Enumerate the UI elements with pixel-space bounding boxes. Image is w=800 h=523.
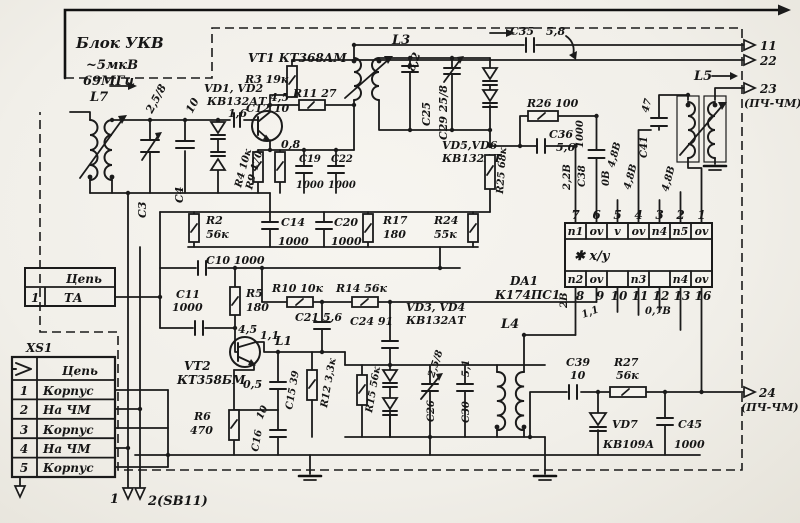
r17-resistor: R17 180: [363, 214, 408, 242]
pin5-voltage: 4,8В: [606, 141, 623, 169]
c41-label: С41: [639, 136, 650, 158]
r5-value: 180: [246, 301, 269, 314]
c3-label: С3: [136, 201, 149, 218]
xs1-row: 4 На ЧМ: [20, 442, 91, 456]
header-block: Блок УКВ ~5мкВ 69МГц: [75, 34, 164, 89]
xs1-row4-name: На ЧМ: [42, 442, 91, 456]
da1-cell-t6: ov: [695, 225, 709, 238]
vd7-label: VD7: [612, 418, 638, 431]
da1-pin11-voltage: 0,7В: [645, 306, 671, 317]
c45-label: С45: [678, 418, 702, 431]
c26-trimmer-cap: 2,5/8 С26: [421, 349, 446, 422]
xs1-title: XS1: [25, 341, 52, 355]
r17-value: 180: [383, 228, 406, 241]
da1-cell-t3: ov: [632, 225, 646, 238]
ta-row-name: ТА: [64, 291, 83, 305]
terminal-23-icon: [744, 83, 755, 93]
r14-label: R14 56к: [335, 282, 388, 295]
c16-value: 10: [255, 404, 271, 421]
c38-value: 1000: [575, 120, 586, 148]
r6-value: 470: [190, 424, 213, 437]
ground-symbols: [299, 476, 556, 480]
c14-value: 1000: [278, 235, 309, 248]
pin7-voltage: 2,2В: [562, 164, 573, 191]
xs1-row: 2 На ЧМ: [19, 403, 91, 417]
l3-label: L3: [391, 33, 410, 48]
pin24-label: 24: [758, 386, 776, 400]
pin22-label: 22: [759, 54, 777, 68]
l4-transformer: L4: [495, 317, 527, 430]
c20-value: 1000: [331, 235, 362, 248]
r25-label: R25 68к: [495, 147, 509, 195]
c36-value: 5,6: [556, 141, 575, 154]
xs1-row1-num: 1: [20, 384, 28, 398]
r2-resistor: R2 56к: [189, 214, 229, 242]
da1-pin6: 6: [592, 208, 601, 222]
da1-cell-t1: ov: [590, 225, 604, 238]
da1-cell-b1: ov: [590, 273, 604, 286]
l7-transformer: L7: [80, 90, 127, 180]
da1-cell-t5: п5: [673, 225, 689, 238]
r24-label: R24: [433, 214, 458, 227]
c30-label: С30: [461, 401, 472, 423]
c41-capacitor: 47 С41: [639, 97, 667, 158]
da1-pin16: 16: [695, 289, 712, 303]
r27-value: 56к: [616, 369, 639, 382]
block-title: Блок УКВ: [75, 34, 164, 52]
xs1-row5-num: 5: [20, 461, 28, 475]
xs1-row1-name: Корпус: [42, 384, 94, 398]
da1-cell-t0: п1: [568, 225, 584, 238]
xs1-row3-name: Корпус: [42, 423, 94, 437]
xs1-row: 3 Корпус: [20, 423, 94, 437]
da1-pin8-voltage: 2В: [559, 293, 570, 309]
r24-resistor: R24 55к: [433, 214, 478, 242]
xs1-row: 1 Корпус: [20, 384, 94, 398]
c36-capacitor: С36 5,6: [537, 128, 575, 154]
c25-value: 8,2: [405, 50, 424, 73]
signal-level: ~5мкВ: [86, 58, 138, 73]
da1-pin9: 9: [596, 289, 605, 303]
c19-value: 1000: [296, 180, 324, 191]
xs1-row4-num: 4: [20, 442, 28, 456]
r10-label: R10 10к: [271, 282, 324, 295]
pin6-voltage: 0В: [601, 171, 612, 186]
r5-label: R5: [245, 287, 263, 300]
xs1-header: Цепь: [61, 364, 98, 378]
down-terminal-icon: [123, 488, 133, 499]
l1-label: L1: [274, 334, 292, 348]
pin23-label: 23: [759, 82, 777, 96]
da1-pin8-voltage2: 1,1: [580, 305, 600, 321]
vd5-vd6-label: VD5,VD6: [442, 139, 498, 152]
vd5-vd6-varicaps: VD5,VD6 КВ132АТ: [441, 68, 502, 165]
vd7-varicap: VD7 КВ109А: [590, 413, 654, 451]
ta-table: Цепь 1 ТА: [25, 268, 115, 306]
da1-cell-b5: п4: [673, 273, 689, 286]
bottom-terminal-1-label: 1: [110, 492, 119, 507]
da1-pin2: 2: [675, 208, 684, 222]
c4-label: С4: [173, 187, 186, 203]
r5-resistor: R5 180: [230, 287, 269, 315]
c35-value: 5,8: [546, 25, 565, 38]
c11-value: 1000: [172, 301, 203, 314]
c14-label: С14: [281, 216, 305, 229]
r25-resistor: R25 68к: [485, 147, 509, 195]
xs1-row3-num: 3: [20, 423, 28, 437]
vt1-base-voltage: 1,6: [228, 107, 247, 120]
da1-pin11: 11: [632, 289, 649, 303]
terminal-22-icon: [744, 55, 755, 65]
vt2-transistor: VT2 КТ358БМ 4,5 1,1 0,5 L1: [176, 323, 292, 391]
r11-resistor: R11 27: [292, 87, 337, 110]
r24-value: 55к: [434, 228, 457, 241]
down-terminal-icon: [15, 486, 25, 497]
da1-cell-b3: п3: [631, 273, 647, 286]
c29-label: С29 25/8: [437, 85, 450, 140]
da1-function: ✱ x/y: [574, 249, 611, 264]
c39-value: 10: [570, 369, 586, 382]
c41-value: 47: [640, 97, 654, 113]
c14-capacitor: С14 1000: [262, 216, 309, 248]
pin4-voltage: 4,8В: [622, 163, 639, 191]
c19-capacitor: С19 1000: [296, 154, 324, 191]
l5-label: L5: [693, 69, 712, 84]
r2-value: 56к: [206, 228, 229, 241]
r2-label: R2: [205, 214, 223, 227]
terminal-24-icon: [744, 387, 755, 397]
r27-label: R27: [613, 356, 639, 369]
xs1-row2-name: На ЧМ: [42, 403, 91, 417]
xs1-row: 5 Корпус: [20, 461, 94, 475]
c45-value: 1000: [674, 438, 705, 451]
da1-pin7: 7: [571, 208, 580, 222]
c3-trimmer-cap: С3 2,5/8: [136, 82, 169, 218]
da1-cell-t4: п4: [652, 225, 668, 238]
c35-capacitor: С35 5,8: [510, 25, 565, 52]
schematic-page: Блок УКВ ~5мкВ 69МГц: [0, 0, 800, 523]
da1-pin13: 13: [674, 289, 691, 303]
da1-pin12: 12: [653, 289, 670, 303]
down-terminal-icon: [135, 488, 145, 499]
r3-label: R3 19к: [244, 73, 289, 86]
l7-label: L7: [89, 90, 108, 105]
xs1-row5-name: Корпус: [42, 461, 94, 475]
r6-resistor: R6 470: [190, 410, 239, 440]
vt2-label: VT2: [184, 359, 211, 373]
c22-label: С22: [331, 154, 353, 165]
c25-label: С25: [420, 102, 433, 126]
terminal-11-icon: [744, 40, 755, 50]
vt1-emitter-voltage: 0,8: [281, 138, 300, 151]
c21-label: С21 5,6: [295, 311, 342, 324]
c11-label: С11: [176, 288, 200, 301]
c19-label: С19: [299, 154, 321, 165]
da1-pin1: 1: [697, 208, 705, 222]
c29-trimmer-cap: С29 25/8: [437, 56, 464, 140]
pin24-note: (ПЧ-ЧМ): [741, 401, 799, 414]
da1-cell-t2: v: [614, 225, 621, 238]
c4-capacitor: С4 10: [173, 95, 202, 203]
r6-label: R6: [193, 410, 211, 423]
l5-transformer: L5: [677, 69, 738, 170]
c15-capacitor: С15 39: [270, 370, 302, 411]
c3-value: 2,5/8: [143, 82, 170, 116]
c16-capacitor: С16 10: [250, 404, 286, 453]
da1-pin10: 10: [611, 289, 628, 303]
xs1-row2-num: 2: [19, 403, 28, 417]
r27-resistor: R27 56к: [610, 356, 646, 397]
c21-capacitor: С21 5,6: [295, 311, 342, 329]
c30-capacitor: 5,1 С30: [457, 360, 473, 423]
xs1-table: XS1 Цепь 1 Корпус 2 На ЧМ 3 Корпус 4 На …: [12, 341, 115, 497]
schematic-canvas: Блок УКВ ~5мкВ 69МГц: [0, 0, 800, 523]
pin23-note: (ПЧ-ЧМ): [744, 97, 800, 110]
output-terminals: 11 22 23 (ПЧ-ЧМ) 24 (ПЧ-ЧМ): [741, 39, 800, 414]
c22-value: 1000: [328, 180, 356, 191]
connector-pin-icon: [12, 363, 31, 375]
da1-cell-b0: п2: [568, 273, 584, 286]
c20-label: С20: [334, 216, 358, 229]
bottom-terminal-2-label: 2(SB11): [147, 494, 208, 509]
c22-capacitor: С22 1000: [328, 154, 356, 191]
c16-label: С16: [250, 429, 265, 452]
c36-label: С36: [549, 128, 573, 141]
da1-pin5: 5: [613, 208, 621, 222]
r10-resistor: R10 10к: [271, 282, 324, 307]
da1-pin4: 4: [634, 208, 642, 222]
vt2-base-voltage: 4,5: [238, 323, 257, 336]
pin11-label: 11: [760, 39, 777, 53]
bottom-terminals: 1 2(SB11): [110, 488, 208, 509]
vt1-label: VT1 КТ368АМ: [248, 51, 347, 65]
da1-type: К174ПС1: [494, 288, 560, 302]
vd3-vd4-type: КВ132АТ: [405, 314, 466, 327]
ta-row-num: 1: [31, 291, 39, 305]
r12-resistor: R12 3,3к: [307, 352, 339, 437]
vd3-vd4-varicaps: VD3, VD4 КВ132АТ: [383, 301, 466, 437]
vd7-type: КВ109А: [602, 438, 654, 451]
c20-capacitor: С20 1000: [316, 216, 362, 248]
da1-pin3: 3: [655, 208, 663, 222]
c24-label: С24 91: [350, 315, 393, 328]
vt2-type: КТ358БМ: [176, 373, 246, 387]
ta-header: Цепь: [65, 272, 102, 286]
c38-label: С38: [577, 165, 588, 187]
r26-label: R26 100: [526, 97, 579, 110]
c25-capacitor: С25 8,2: [402, 50, 433, 126]
c15-label: С15 39: [284, 370, 302, 411]
r14-resistor: R14 56к: [335, 282, 388, 307]
da1-chip: 7 6 5 4 3 2 1 п1 ov v ov п4 п5 ov ✱ x/y …: [494, 208, 712, 321]
r26-resistor: R26 100: [526, 97, 579, 121]
c26-label: С26: [426, 400, 437, 422]
pin2-voltage: 4,8В: [660, 165, 677, 193]
c30-value: 5,1: [461, 360, 472, 377]
c10-capacitor: С10 1000: [198, 254, 265, 275]
l4-label: L4: [500, 317, 519, 332]
c10-label: С10 1000: [206, 254, 265, 267]
c4-value: 10: [183, 95, 202, 115]
c39-label: С39: [566, 356, 590, 369]
c35-label: С35: [510, 25, 534, 38]
da1-cell-b6: ov: [695, 273, 709, 286]
da1-pin8: 8: [576, 289, 585, 303]
r15-resistor: R15 56к: [357, 366, 383, 415]
vd3-vd4-label: VD3, VD4: [406, 301, 465, 314]
vt2-emitter-voltage: 0,5: [243, 378, 262, 391]
da1-ref: DA1: [509, 274, 538, 288]
r11-label: R11 27: [292, 87, 337, 100]
r17-label: R17: [382, 214, 408, 227]
r12-label: R12 3,3к: [319, 357, 339, 409]
